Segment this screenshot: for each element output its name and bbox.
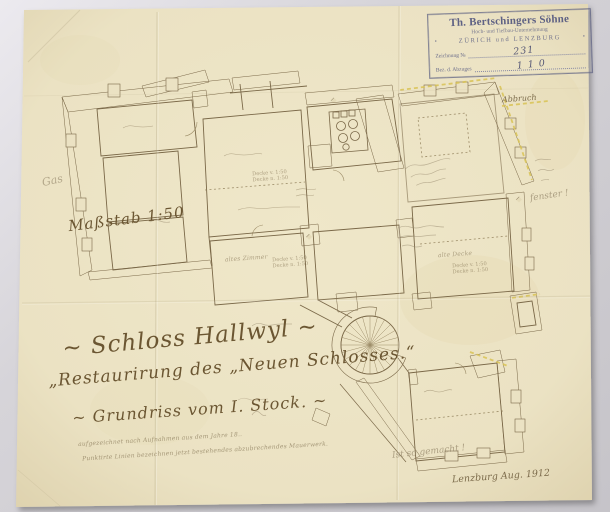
stamp-drawing-no-line: 231 [468, 44, 585, 58]
stamp-copy-line: 1 1 0 [474, 58, 586, 72]
stamp-right-glyph: ▪ [583, 34, 585, 39]
stamp-drawing-no-value: 231 [512, 44, 534, 57]
deck-note-2: Decke v. 1:50 Decke n. 1:50 [272, 256, 308, 270]
company-stamp: Th. Bertschingers Söhne Hoch- und Tiefba… [427, 8, 593, 79]
stamp-drawing-no-label: Zeichnung № [435, 53, 465, 60]
stamp-copy-label: Bez. d. Abzuges [436, 66, 472, 73]
deck-note-1: Decke v. 1:50 Decke n. 1:50 [252, 170, 288, 184]
scanned-plan-photo: Th. Bertschingers Söhne Hoch- und Tiefba… [0, 0, 610, 512]
deck-note-3: Decke v. 1:50 Decke n. 1:50 [452, 262, 488, 276]
stamp-left-glyph: ▪ [435, 40, 437, 45]
stamp-copy-row: Bez. d. Abzuges 1 1 0 [436, 58, 586, 73]
stamp-cities: ZÜRICH und LENZBURG [459, 34, 561, 45]
stamp-drawing-no-row: Zeichnung № 231 [435, 44, 585, 59]
stamp-copy-value: 1 1 0 [516, 58, 546, 72]
